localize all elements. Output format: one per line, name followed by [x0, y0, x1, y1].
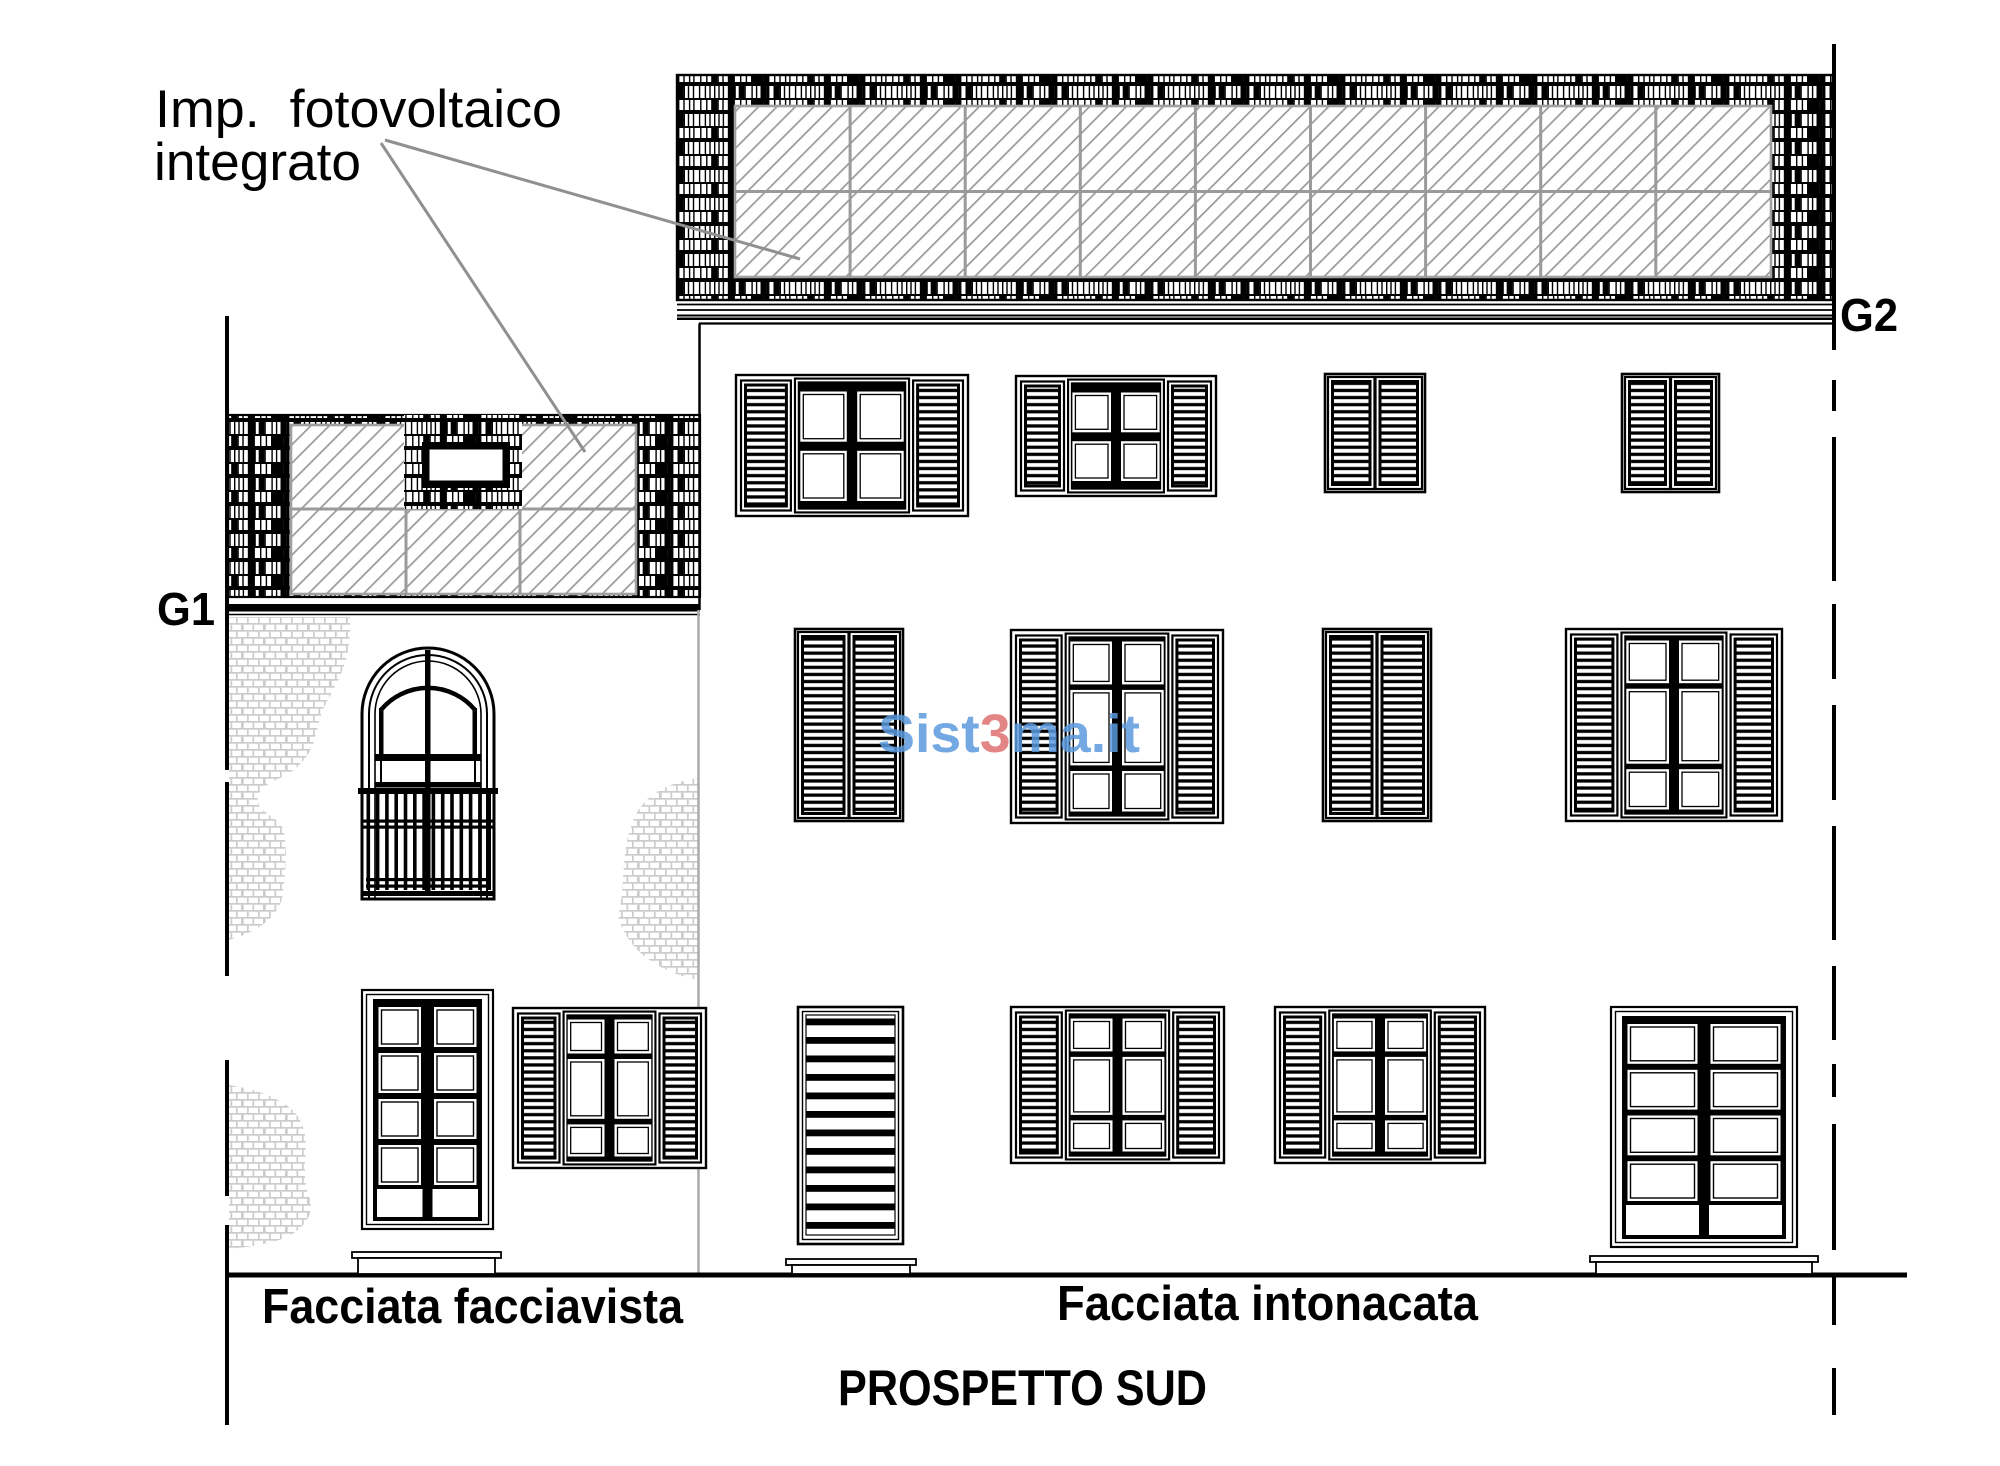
- svg-text:integrato: integrato: [154, 133, 361, 192]
- svg-text:G1: G1: [157, 583, 215, 635]
- svg-text:Facciata intonacata: Facciata intonacata: [1057, 1277, 1479, 1331]
- svg-text:Sist3ma.it: Sist3ma.it: [878, 704, 1140, 764]
- svg-text:Facciata facciavista: Facciata facciavista: [262, 1280, 684, 1334]
- svg-text:Imp. fotovoltaico: Imp. fotovoltaico: [155, 80, 562, 139]
- svg-text:PROSPETTO SUD: PROSPETTO SUD: [838, 1360, 1207, 1416]
- svg-text:G2: G2: [1840, 289, 1898, 341]
